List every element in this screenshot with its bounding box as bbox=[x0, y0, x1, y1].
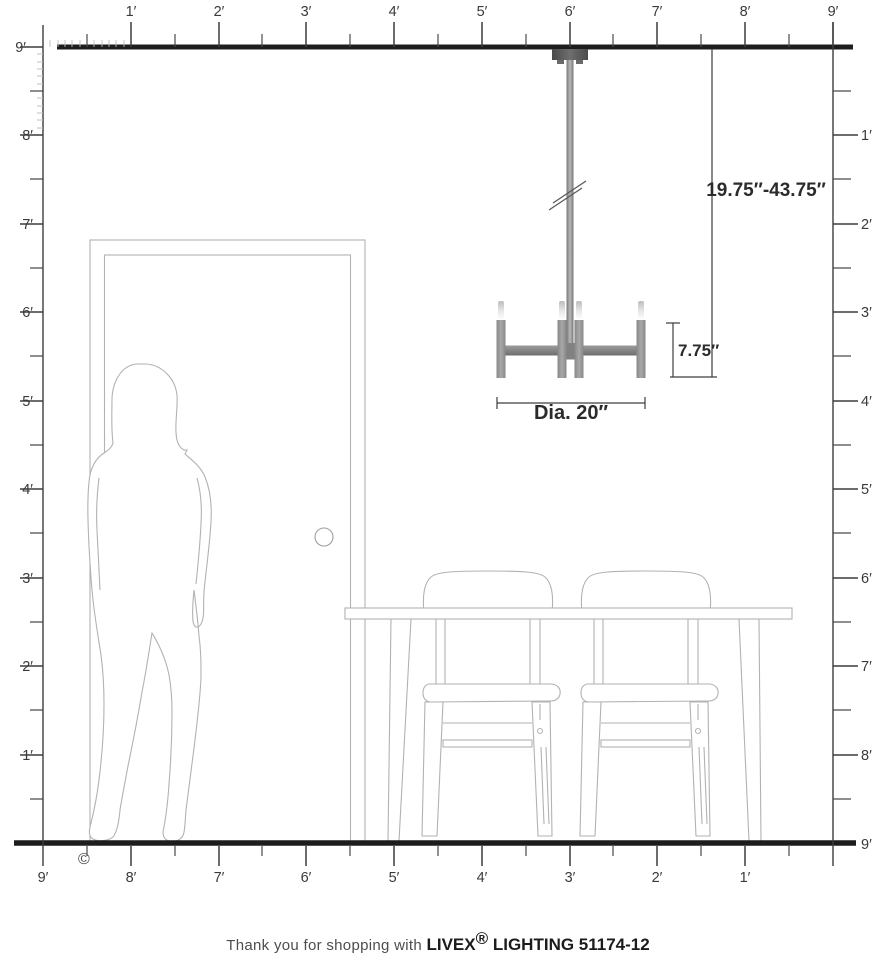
ruler-label: 3′ bbox=[22, 571, 33, 587]
ruler-label: 2′ bbox=[214, 4, 225, 20]
ruler-label: 5′ bbox=[477, 4, 488, 20]
ruler-label: 9′ bbox=[861, 837, 872, 853]
footer-model-number: LIGHTING 51174-12 bbox=[488, 935, 650, 954]
candle-tip bbox=[498, 301, 504, 320]
ruler-label: 9′ bbox=[828, 4, 839, 20]
copyright-symbol: © bbox=[78, 851, 90, 868]
ruler-label: 6′ bbox=[301, 870, 312, 886]
ruler-label: 5′ bbox=[389, 870, 400, 886]
ruler-label: 7′ bbox=[22, 217, 33, 233]
fixture-diameter-label: Dia. 20″ bbox=[534, 402, 608, 424]
ruler-label: 7′ bbox=[652, 4, 663, 20]
candle-tube bbox=[497, 320, 506, 378]
candle-tube bbox=[637, 320, 646, 378]
ruler-label: 1′ bbox=[126, 4, 137, 20]
ruler-label: 2′ bbox=[652, 870, 663, 886]
ruler-label: 5′ bbox=[22, 394, 33, 410]
candle-tip bbox=[576, 301, 582, 320]
ruler-label: 4′ bbox=[861, 394, 872, 410]
ruler-label: 1′ bbox=[861, 128, 872, 144]
ruler-label: 2′ bbox=[22, 659, 33, 675]
ruler-label: 3′ bbox=[565, 870, 576, 886]
footer-note: Thank you for shopping with LIVEX® LIGHT… bbox=[0, 929, 876, 955]
fixture-height-label: 7.75″ bbox=[678, 341, 719, 360]
ruler-label: 8′ bbox=[861, 748, 872, 764]
ruler-label: 2′ bbox=[861, 217, 872, 233]
hang-range-label: 19.75″-43.75″ bbox=[706, 180, 826, 201]
ruler-label: 4′ bbox=[22, 482, 33, 498]
ruler-label: 3′ bbox=[861, 305, 872, 321]
ruler-label: 6′ bbox=[565, 4, 576, 20]
top-major-ticks bbox=[131, 22, 833, 47]
left-half-ticks bbox=[30, 91, 43, 799]
bottom-half-ticks bbox=[87, 846, 789, 856]
table-leg bbox=[388, 619, 411, 841]
bottom-ruler-labels: 9′ 8′ 7′ 6′ 5′ 4′ 3′ 2′ 1′ bbox=[38, 870, 751, 886]
room-furniture bbox=[88, 240, 792, 843]
ruler-label: 7′ bbox=[214, 870, 225, 886]
ruler-label: 8′ bbox=[740, 4, 751, 20]
ceiling-canopy bbox=[552, 49, 588, 60]
table-leg bbox=[739, 619, 761, 841]
canopy-nub bbox=[576, 60, 583, 64]
table-top bbox=[345, 608, 792, 619]
candle-tip bbox=[559, 301, 565, 320]
ruler-label: 4′ bbox=[477, 870, 488, 886]
ruler-label: 1′ bbox=[22, 748, 33, 764]
top-ruler-labels: 1′ 2′ 3′ 4′ 5′ 6′ 7′ 8′ 9′ bbox=[126, 4, 839, 20]
right-half-ticks bbox=[833, 91, 851, 799]
candle-tube bbox=[558, 320, 567, 378]
dimension-diagram: 1′ 2′ 3′ 4′ 5′ 6′ 7′ 8′ 9′ 9′ 8′ 7′ 6′ 5… bbox=[0, 0, 876, 961]
footer-prefix: Thank you for shopping with bbox=[226, 937, 426, 954]
registered-mark-icon: ® bbox=[476, 929, 489, 948]
left-ruler-labels: 9′ 8′ 7′ 6′ 5′ 4′ 3′ 2′ 1′ bbox=[15, 40, 33, 764]
ruler-label: 3′ bbox=[301, 4, 312, 20]
ruler-label: 6′ bbox=[22, 305, 33, 321]
downrod bbox=[567, 60, 574, 352]
door-knob bbox=[315, 528, 333, 546]
ruler-label: 1′ bbox=[740, 870, 751, 886]
ruler-label: 9′ bbox=[15, 40, 26, 56]
ruler-label: 6′ bbox=[861, 571, 872, 587]
candle-tube bbox=[575, 320, 584, 378]
ruler-label: 8′ bbox=[126, 870, 137, 886]
ruler-label: 5′ bbox=[861, 482, 872, 498]
right-ruler-labels: 1′ 2′ 3′ 4′ 5′ 6′ 7′ 8′ 9′ bbox=[861, 128, 872, 853]
chandelier bbox=[497, 49, 646, 378]
candle-tip bbox=[638, 301, 644, 320]
ruler-label: 4′ bbox=[389, 4, 400, 20]
brand-name: LIVEX bbox=[426, 935, 475, 954]
ruler-label: 8′ bbox=[22, 128, 33, 144]
dimension-annotations: 19.75″-43.75″ 7.75″ Dia. 20″ bbox=[497, 49, 826, 424]
ruler-label: 7′ bbox=[861, 659, 872, 675]
canopy-nub bbox=[557, 60, 564, 64]
ruler-label: 9′ bbox=[38, 870, 49, 886]
